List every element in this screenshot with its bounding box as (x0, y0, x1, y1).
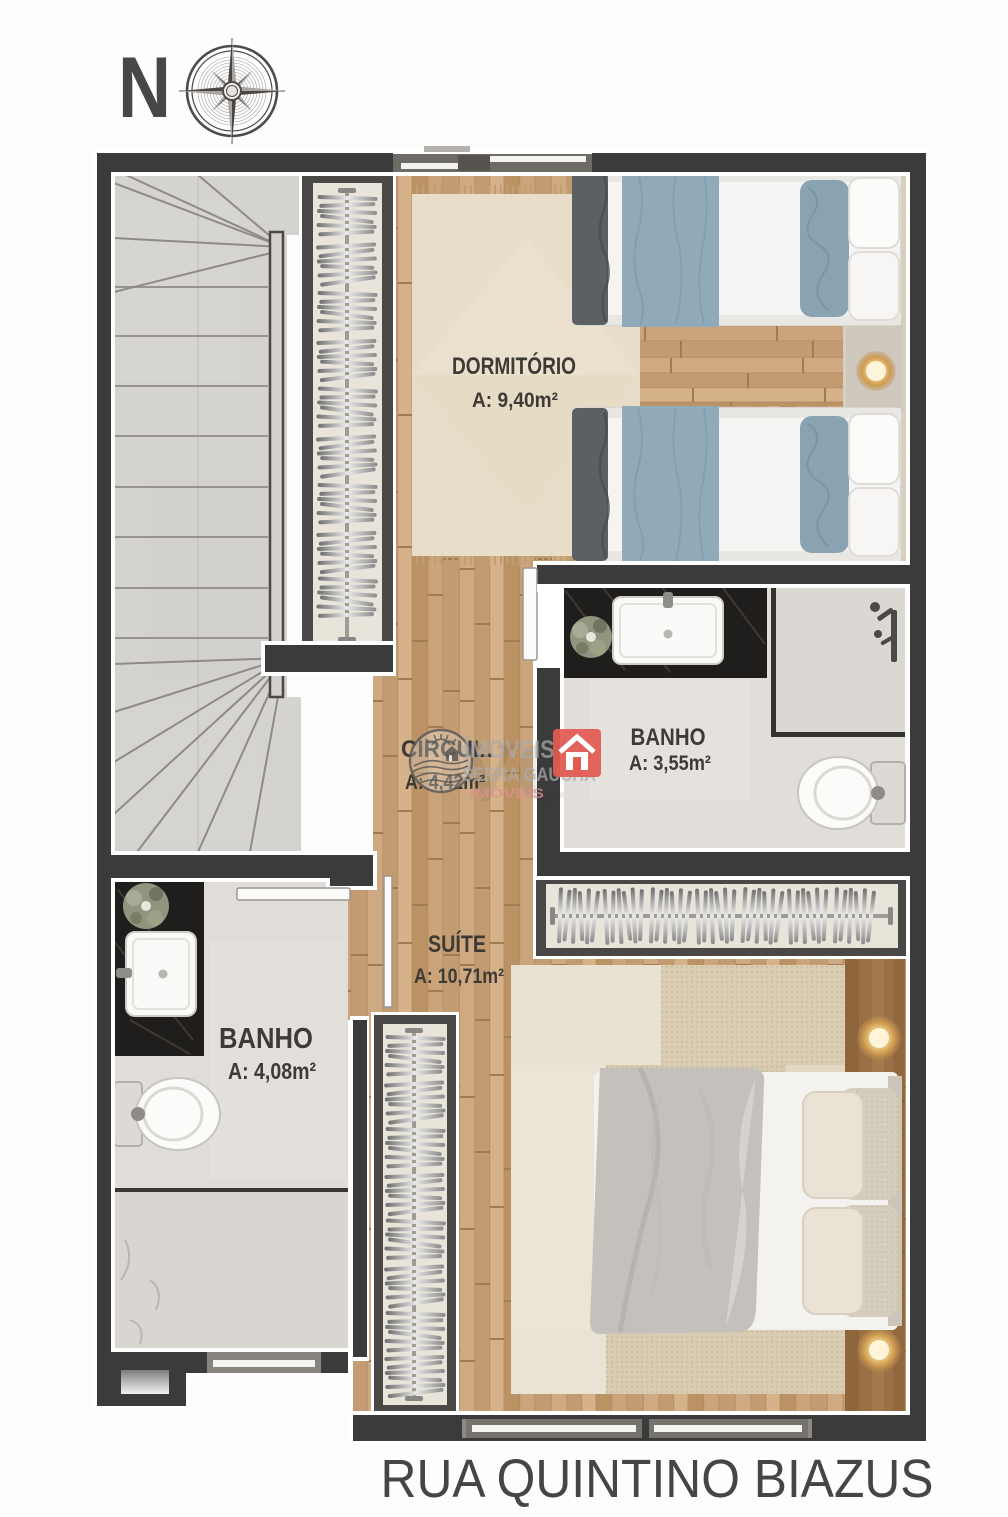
svg-text:A: 3,55m²: A: 3,55m² (629, 752, 711, 775)
svg-text:A: 9,40m²: A: 9,40m² (472, 389, 558, 412)
svg-text:DORMITÓRIO: DORMITÓRIO (452, 352, 576, 380)
svg-text:A: 10,71m²: A: 10,71m² (414, 965, 504, 988)
svg-text:BANHO: BANHO (219, 1023, 313, 1055)
svg-text:RUA QUINTINO BIAZUS: RUA QUINTINO BIAZUS (381, 1449, 934, 1509)
svg-text:BANHO: BANHO (631, 724, 706, 751)
svg-text:SUÍTE: SUÍTE (428, 930, 486, 958)
svg-text:A: 4,08m²: A: 4,08m² (228, 1058, 316, 1084)
svg-text:IMÓVEIS: IMÓVEIS (470, 784, 544, 801)
svg-text:N: N (118, 40, 171, 136)
